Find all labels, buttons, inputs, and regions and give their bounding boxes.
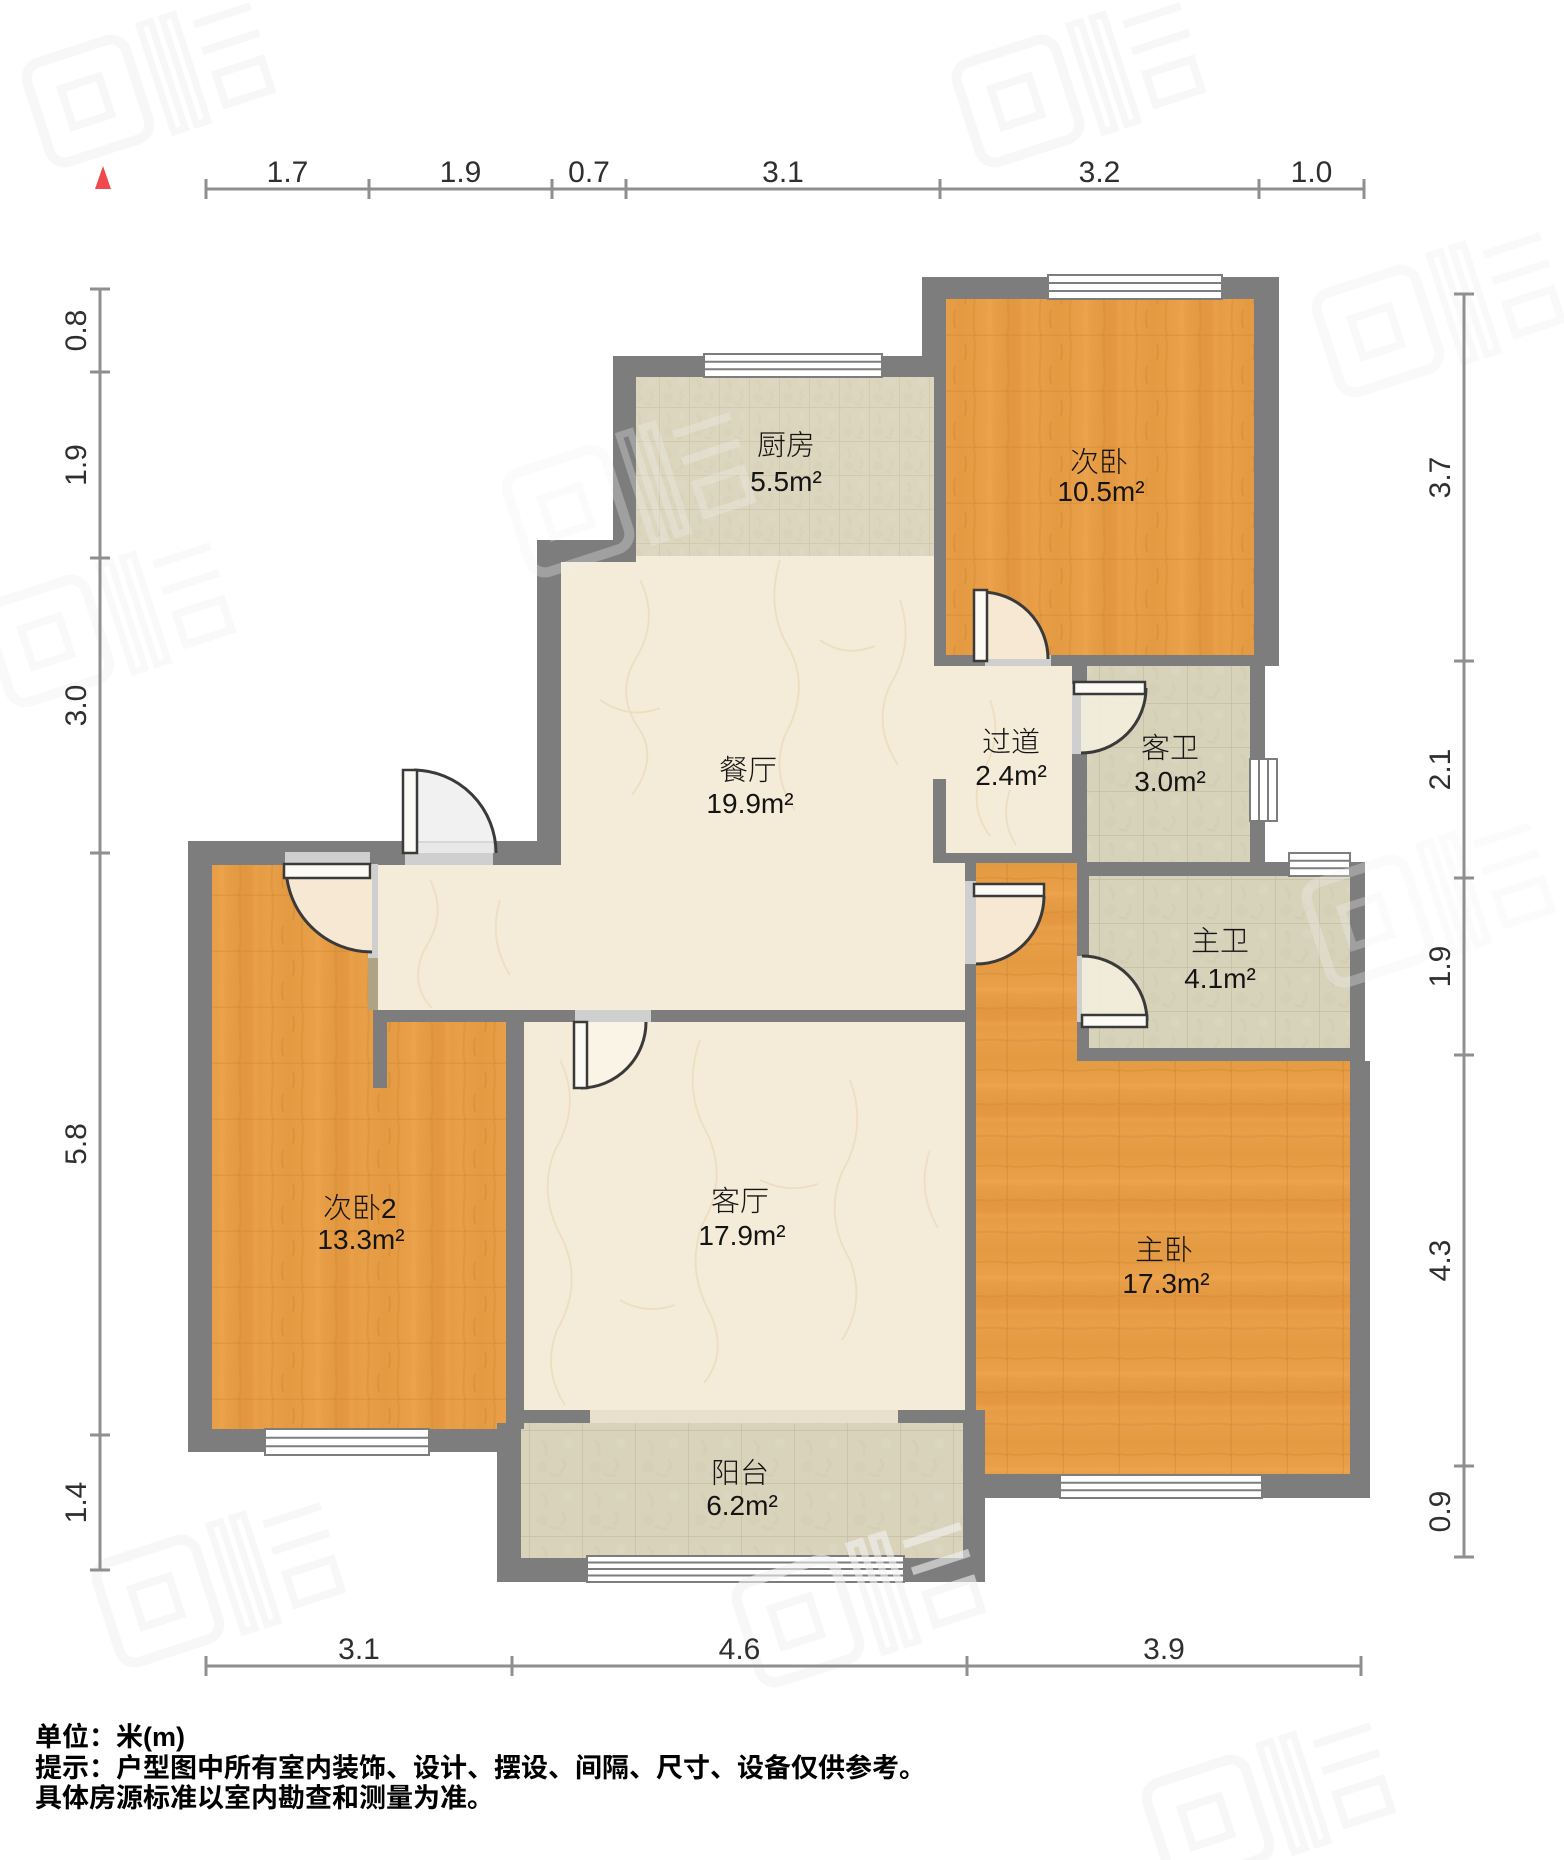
- svg-text:1.7: 1.7: [267, 156, 309, 189]
- svg-text:17.3m²: 17.3m²: [1122, 1268, 1209, 1299]
- svg-text:19.9m²: 19.9m²: [706, 788, 793, 819]
- svg-text:5.5m²: 5.5m²: [750, 466, 822, 497]
- svg-text:0.9: 0.9: [1424, 1491, 1457, 1533]
- svg-text:2.4m²: 2.4m²: [975, 760, 1047, 791]
- svg-text:0.7: 0.7: [568, 156, 610, 189]
- svg-text:4.3: 4.3: [1424, 1240, 1457, 1282]
- svg-text:6.2m²: 6.2m²: [706, 1490, 778, 1521]
- svg-text:4.6: 4.6: [719, 1633, 761, 1666]
- svg-text:10.5m²: 10.5m²: [1057, 476, 1144, 507]
- svg-text:2: 2: [381, 1193, 397, 1224]
- svg-text:3.1: 3.1: [338, 1633, 380, 1666]
- svg-text:1.9: 1.9: [60, 444, 93, 486]
- svg-text:4.1m²: 4.1m²: [1184, 963, 1256, 994]
- svg-text:3.0m²: 3.0m²: [1134, 766, 1206, 797]
- svg-text:(m): (m): [143, 1722, 185, 1752]
- svg-text:5.8: 5.8: [60, 1123, 93, 1165]
- svg-text:13.3m²: 13.3m²: [317, 1224, 404, 1255]
- svg-text:1.4: 1.4: [60, 1482, 93, 1524]
- svg-text:1.9: 1.9: [440, 156, 482, 189]
- svg-text:3.0: 3.0: [60, 685, 93, 727]
- svg-text:3.7: 3.7: [1424, 457, 1457, 499]
- svg-text:3.1: 3.1: [762, 156, 804, 189]
- svg-text:3.9: 3.9: [1143, 1633, 1185, 1666]
- svg-text:3.2: 3.2: [1079, 156, 1121, 189]
- svg-text:17.9m²: 17.9m²: [698, 1220, 785, 1251]
- svg-text:0.8: 0.8: [60, 310, 93, 352]
- svg-text:2.1: 2.1: [1424, 749, 1457, 791]
- svg-text:1.9: 1.9: [1424, 946, 1457, 988]
- svg-text:1.0: 1.0: [1291, 156, 1333, 189]
